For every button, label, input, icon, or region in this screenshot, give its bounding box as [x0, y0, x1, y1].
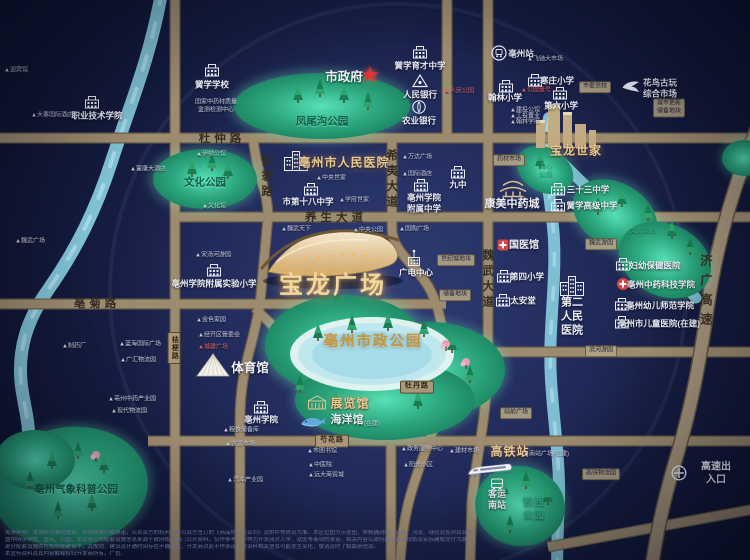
map-label: 亳州学院附属实验小学	[171, 279, 256, 290]
hospital-icon	[559, 275, 585, 297]
kangmei-tcm-city: 康美中药城	[485, 198, 540, 212]
map-label: 三十三中学	[567, 185, 610, 196]
expo-icon	[307, 394, 327, 410]
map-label: 广电中心	[399, 268, 433, 279]
map-label: ▲广汇物流园	[120, 357, 156, 365]
map-label: 人民银行	[403, 90, 437, 101]
map-label: ▲制药厂	[62, 343, 86, 351]
tent-icon	[195, 352, 231, 378]
map-label: 文昌公园	[630, 227, 656, 235]
map-label: ▲中医院	[308, 462, 332, 470]
xianweng-road-label: 仙翁路	[259, 154, 273, 201]
map-label: ▲粮食储备库	[223, 427, 259, 435]
municipal-park-label: 亳州市政公园	[324, 333, 423, 351]
map-label: 储备地块	[439, 289, 471, 301]
map-label: ▲城建广场	[198, 344, 228, 352]
map-label: 妇幼保健医院	[629, 261, 680, 272]
map-label: ▲翰林学府	[510, 119, 540, 127]
dove-icon	[621, 79, 641, 93]
building-icon	[253, 400, 269, 414]
map-label: 海心 公园	[540, 163, 553, 179]
hsr-station: 高铁站	[490, 445, 529, 460]
map-label: ▲经开区管委会	[198, 332, 240, 340]
map-label: (在建)	[364, 421, 380, 429]
bank2-icon	[412, 100, 427, 115]
duzhong-road-label: 杜仲路	[199, 132, 246, 146]
building-icon	[496, 269, 512, 283]
map-label: ▲建材市场	[449, 448, 479, 456]
map-label: 城市更新 储备地块	[653, 99, 685, 118]
bozhou-railway-station: 亳州站	[508, 49, 534, 60]
bus-icon	[490, 477, 504, 491]
baolong-shijia: 宝龙世家	[550, 144, 602, 159]
map-label: ▲汽车产业园	[227, 477, 263, 485]
map-label: ▲宋汤河游园	[195, 252, 231, 260]
meteorology-park-label: 亳州气象科普公园	[34, 483, 118, 496]
disclaimer-text: 免责声明：本资料为要约邀请，不构成要约或承诺，买卖双方的权利义务以双方签订的《商…	[5, 530, 475, 559]
south-bus-station: 客运 南站	[488, 489, 506, 512]
star-icon: ★	[360, 64, 380, 86]
building-icon	[413, 178, 429, 192]
map-label: ▲阳光小区	[403, 462, 433, 470]
flower-bird-market: 花鸟古玩 综合市场	[643, 77, 677, 98]
map-label: 太安堂	[510, 296, 536, 307]
building-icon	[550, 198, 566, 212]
map-label: ▲中央世家	[316, 175, 346, 183]
map-label: 亳州中药科技学院	[627, 280, 695, 291]
hongxue-school: 黉学学校	[195, 80, 229, 91]
building-icon	[84, 95, 100, 109]
map-label: 芍花路	[315, 435, 349, 448]
disclaimer-line: 免责声明：本资料为要约邀请，不构成要约或承诺，买卖双方的权利义务以双方签订的《商…	[5, 530, 475, 537]
hospital-icon	[283, 150, 309, 172]
whale-icon	[299, 414, 327, 430]
map-label: 亳州幼儿师范学院	[626, 301, 694, 312]
map-label: ▲大寨国际酒店	[31, 112, 73, 120]
map-label: 桔梗路	[168, 332, 181, 364]
map: ▲迎宾馆▲大寨国际酒店职业技术学院黉学学校国家中药材质量 监测检测中心▲富康大酒…	[0, 0, 750, 560]
xiyi-avenue-label: 希夷大道	[384, 149, 398, 211]
map-label: ▲伊顿公馆	[196, 151, 226, 159]
map-label: 药材市场	[493, 154, 525, 166]
map-label: ▲国购广场	[399, 226, 429, 234]
disclaimer-line: 部分配套设施尚在规划或建设中，其规划、建设及开通时间存在不确定性，开发商对此不作…	[5, 544, 475, 551]
building-icon	[206, 263, 222, 277]
map-label: 市委党校	[579, 81, 611, 93]
city-government: 市政府	[325, 70, 363, 86]
map-label: ▲魏武天下	[281, 226, 311, 234]
people-hospital: 亳州市人民医院	[298, 156, 389, 171]
map-label: 亳州市儿童医院(在建)	[618, 319, 700, 330]
building-icon	[614, 297, 630, 311]
building-icon	[495, 293, 511, 307]
map-label: ▲市图书馆	[307, 448, 337, 456]
disclaimer-line: 图中所示学校、医院、公园、车站等公共配套设施信息来源于政府相关部门公开资料，仅作…	[5, 537, 475, 544]
aquarium: 海洋馆	[331, 414, 364, 428]
weiwu-avenue-label: 魏武大道	[480, 249, 494, 311]
expressway-exit: 高速出入口	[699, 462, 733, 487]
map-label: 国医馆	[509, 240, 539, 253]
exhibition-hall: 展览馆	[330, 397, 369, 412]
map-label: ▲文化馆	[202, 203, 226, 211]
map-label: ▲人民公园	[444, 88, 474, 96]
map-label: 滨河游园	[585, 345, 617, 357]
crossc-icon	[617, 278, 630, 291]
map-label: 站前广场	[500, 407, 532, 419]
map-label: 黉学育才中学	[394, 61, 445, 72]
map-label: ▲工投置业	[510, 113, 540, 121]
map-label: ▲中央公园	[353, 227, 383, 235]
building-icon	[303, 182, 319, 196]
building-icon	[615, 257, 631, 271]
inter-icon	[671, 465, 687, 481]
map-label: 牡丹路	[400, 381, 434, 394]
jiguang-expressway-label: 济广高速	[696, 254, 712, 332]
map-label: 第四小学	[510, 272, 544, 283]
map-label: ▲农贸市场	[225, 441, 255, 449]
boju-road-label: 亳菊路	[74, 297, 121, 311]
map-label: 农业银行	[402, 116, 436, 127]
map-label: ▲飞驰大市场	[527, 56, 563, 64]
map-label: ▲政务服务中心	[401, 446, 443, 454]
second-people-hospital: 第二 人民 医院	[561, 296, 583, 337]
map-label: 寒庄小学	[540, 76, 574, 87]
vocational-college: 职业技术学院	[71, 111, 122, 122]
map-label: 九中	[449, 180, 466, 191]
map-label: ▲万达广场	[402, 154, 432, 162]
map-label: 亳州学院 附属中学	[407, 192, 441, 213]
tower-icon	[404, 249, 422, 267]
map-label: ▲远大商贸城	[308, 472, 344, 480]
stadium: 体育馆	[231, 361, 269, 377]
cross-icon	[497, 239, 509, 251]
map-label: ▲现代物流园	[111, 408, 147, 416]
map-label: 魏武游园	[585, 238, 617, 250]
map-label: ▲国际酒店	[402, 171, 432, 179]
building-icon	[550, 182, 566, 196]
building-icon	[450, 165, 466, 179]
map-label: ▲魏武广场	[15, 238, 45, 246]
map-label: ▲公园壹号	[521, 87, 551, 95]
map-label: 市第十八中学	[282, 197, 333, 208]
station-icon	[491, 45, 507, 61]
pagoda-icon	[499, 177, 527, 198]
building-icon	[527, 73, 543, 87]
map-label: ▲蓝海国际广场	[119, 341, 161, 349]
map-label: 黉学高级中学	[566, 201, 617, 212]
map-label: 高铁物流园	[582, 468, 620, 480]
map-label: ▲富康大酒店	[130, 166, 166, 174]
map-label: 国家中药材质量 监测检测中心	[195, 100, 237, 115]
map-label: 翰林小学	[488, 93, 522, 104]
map-label: ▲金色家园	[196, 317, 226, 325]
building-icon	[204, 63, 220, 77]
map-label: 世纪城地块	[437, 254, 475, 266]
train-icon	[466, 461, 514, 477]
map-label: ▲南站广场(在建)	[523, 451, 569, 459]
fengweigou-park-label: 凤尾沟公园	[296, 115, 349, 128]
building-icon	[552, 86, 568, 100]
map-labels: ▲迎宾馆▲大寨国际酒店职业技术学院黉学学校国家中药材质量 监测检测中心▲富康大酒…	[0, 0, 750, 560]
map-label: ▲学府世家	[339, 197, 369, 205]
yangsheng-avenue-label: 养生大道	[305, 211, 367, 225]
project-title: 宝龙广场	[279, 270, 387, 300]
building-icon	[412, 45, 428, 59]
map-label: ▲建投公馆	[510, 107, 540, 115]
map-label: ▲迎宾馆	[4, 67, 28, 75]
tiexi-park-label: 铁西 公园	[523, 498, 545, 523]
building-icon	[498, 79, 514, 93]
map-label: ▲亳州中药产业园	[108, 396, 156, 404]
map-label: 亳州学院	[244, 415, 278, 426]
culture-park-label: 文化公园	[184, 176, 226, 189]
map-label: 第六小学	[544, 101, 578, 112]
disclaimer-line: 本宣传资料及其内容解释权归开发商所有。广告。	[5, 551, 475, 558]
building-icon	[614, 315, 630, 329]
bank1-icon	[412, 74, 428, 89]
